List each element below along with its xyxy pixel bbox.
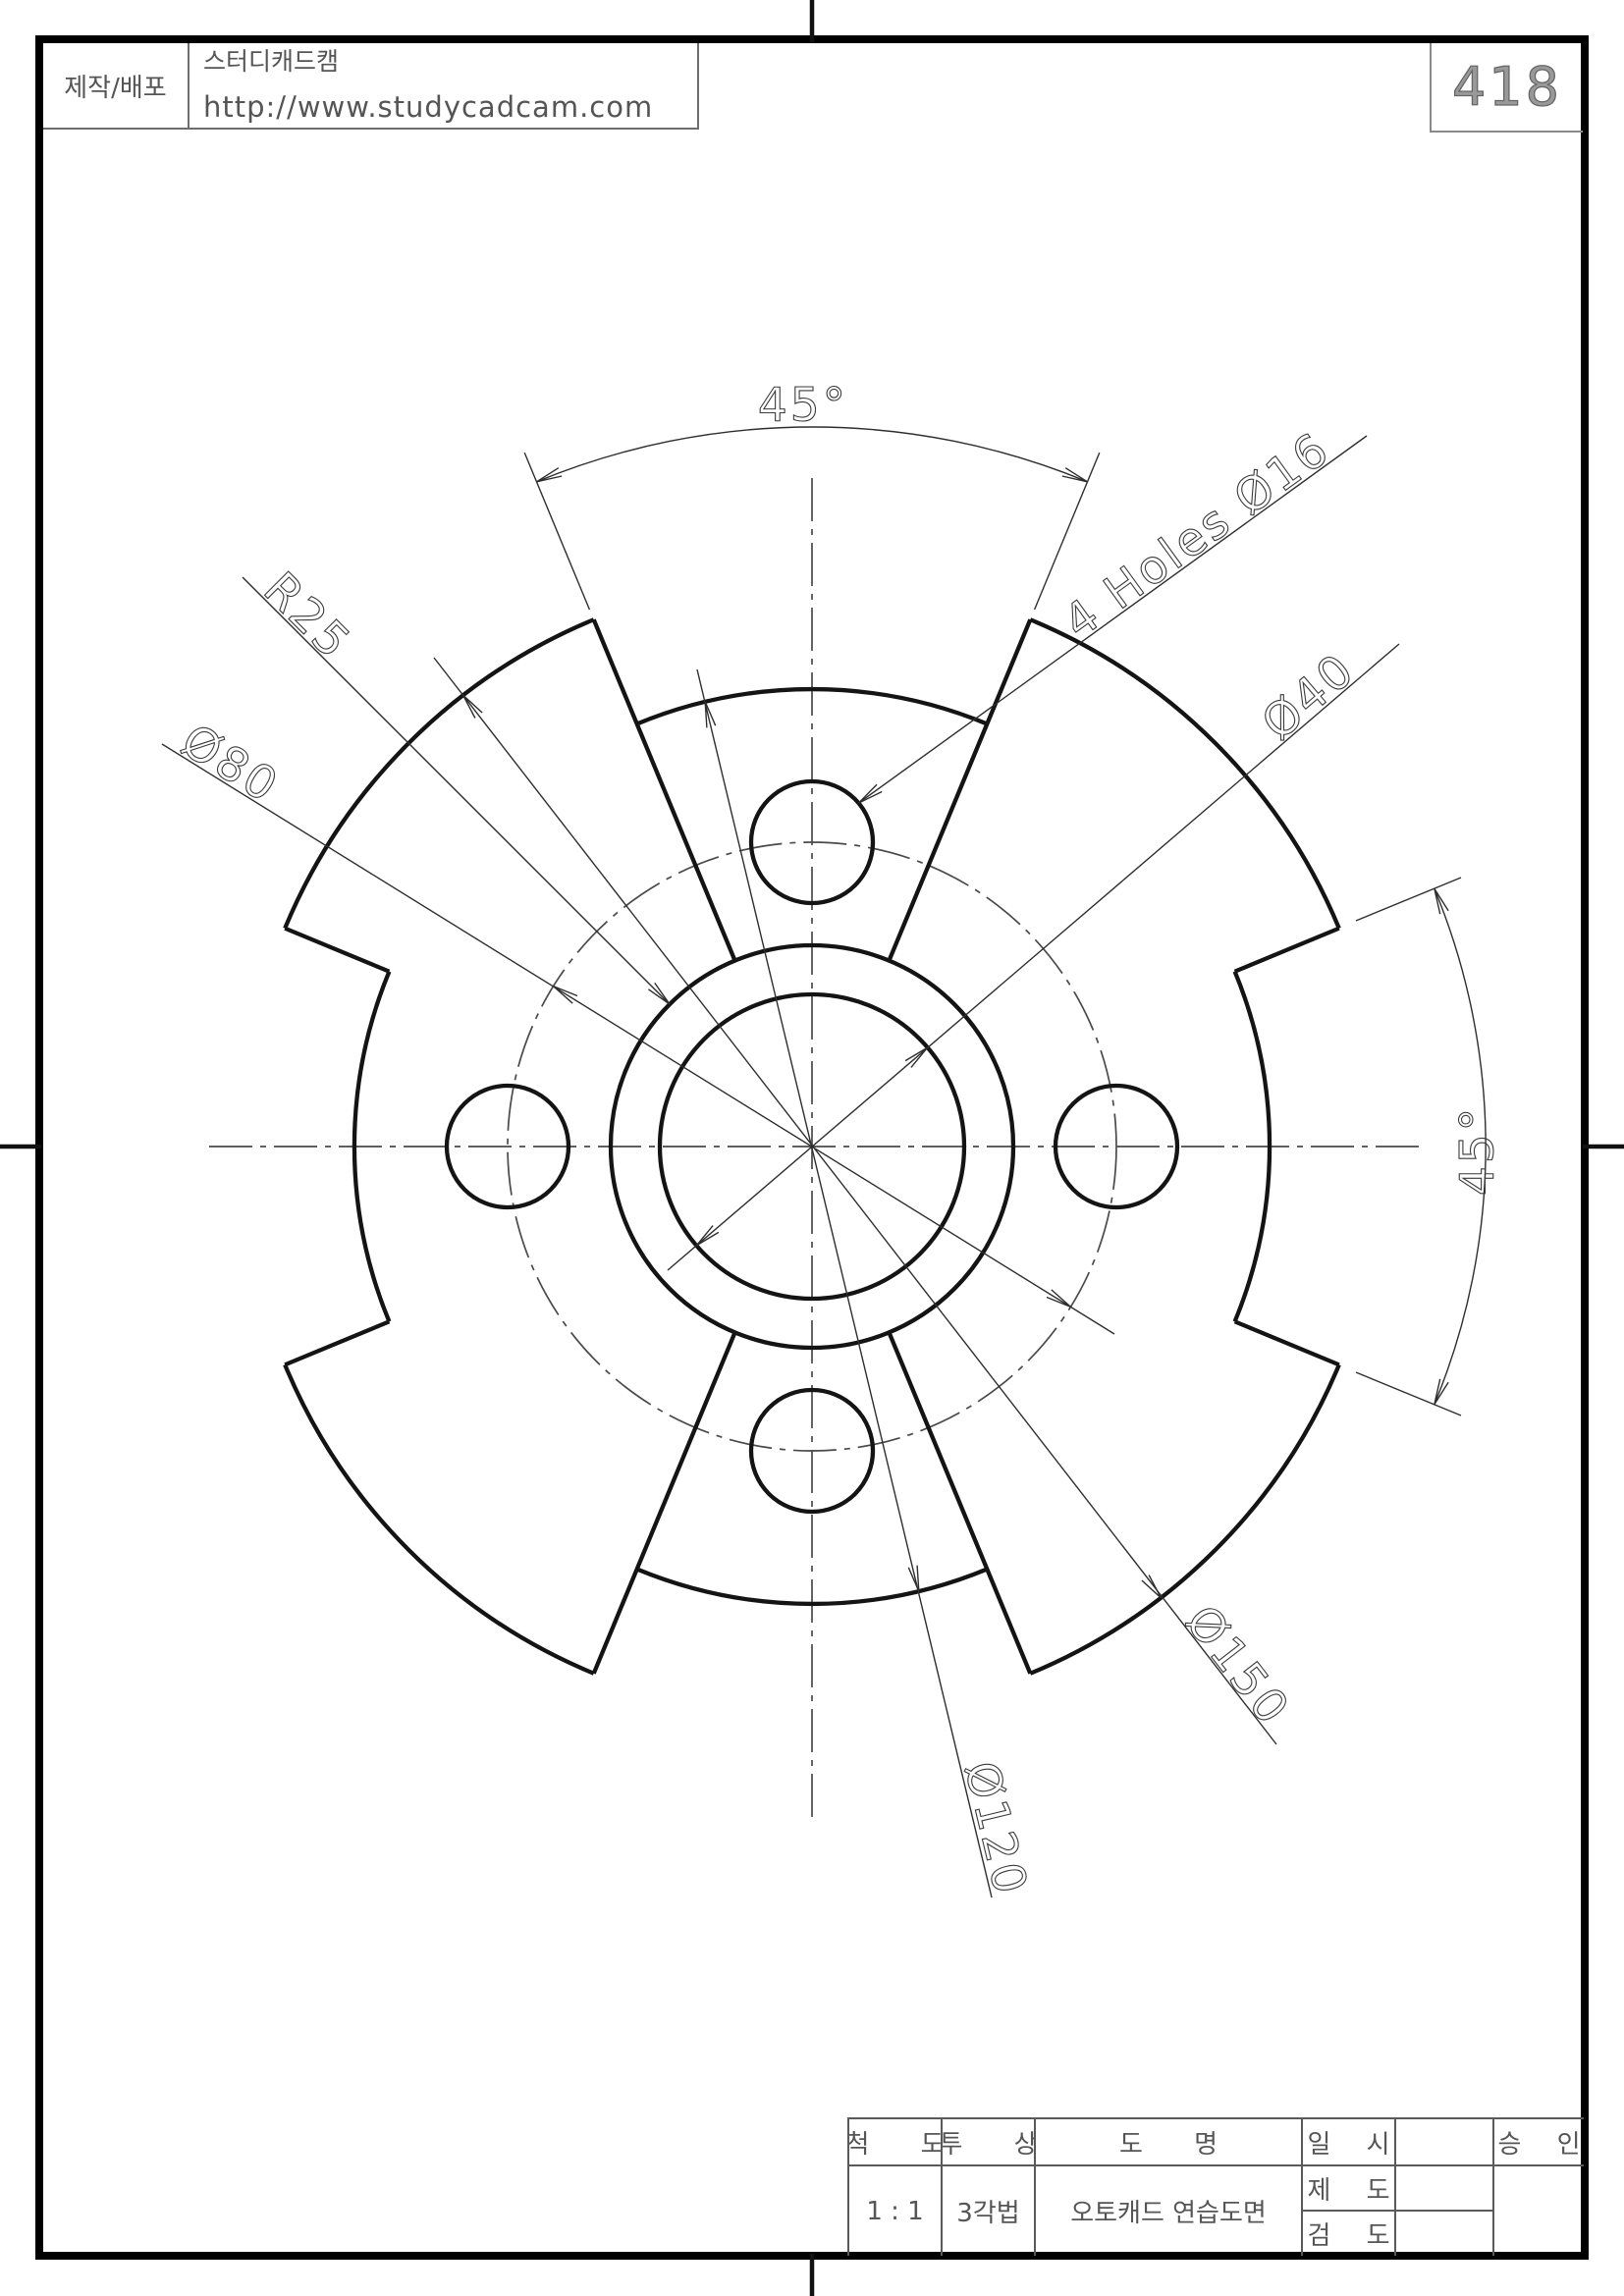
- arrowheads: [463, 468, 1449, 1598]
- centerlines: [209, 478, 1422, 1818]
- left-notch-edge-bottom: [285, 1321, 389, 1364]
- draft-label-cell: 제 도: [1301, 2164, 1394, 2210]
- date-value-cell: [1394, 2119, 1492, 2164]
- date-header: 일 시: [1301, 2119, 1394, 2164]
- dim-top-angle: 45°: [758, 379, 848, 433]
- drawing-name-value: 오토캐드 연습도면: [1034, 2164, 1301, 2256]
- scale-header-label: 척 도: [849, 2124, 941, 2161]
- outer-arc-ne: [1030, 619, 1339, 929]
- projection-header-label: 투 상: [941, 2124, 1034, 2161]
- approval-header: 승 인: [1492, 2119, 1584, 2164]
- drawing-name-header: 도 명: [1034, 2119, 1301, 2164]
- outer-arc-sw: [285, 1364, 594, 1674]
- dim-center-hole: Ø40: [1252, 642, 1366, 751]
- dim-side-angle: 45°: [1451, 1105, 1505, 1196]
- title-block: 척 도 투 상 도 명 일 시 승 인 1 : 1 3각법 오토캐드 연습도면 …: [847, 2117, 1584, 2256]
- check-label: 검 도: [1307, 2216, 1394, 2252]
- right-notch-edge-bottom: [1235, 1321, 1339, 1364]
- dim-hub-radius: R25: [253, 562, 362, 671]
- bottom-slot-left-edge: [594, 1332, 735, 1673]
- bottom-slot-right-edge: [890, 1332, 1031, 1673]
- scale-header: 척 도: [849, 2119, 941, 2164]
- dim-slot-step-dia: Ø120: [953, 1756, 1038, 1901]
- check-label-cell: 검 도: [1301, 2210, 1394, 2256]
- right-notch-edge-top: [1235, 929, 1339, 972]
- dim-outer-dia: Ø150: [1174, 1595, 1300, 1735]
- dim-bolt-circle: Ø80: [172, 714, 289, 815]
- draft-value-cell: [1394, 2164, 1492, 2210]
- dimension-labels: 45° 45° R25 Ø80 Ø40 4 Holes Ø16 Ø150 Ø12…: [172, 379, 1504, 1902]
- check-value-cell: [1394, 2210, 1492, 2256]
- projection-header: 투 상: [941, 2119, 1034, 2164]
- dimension-lines: [162, 427, 1486, 1897]
- drawing-name-header-label: 도 명: [1119, 2124, 1239, 2161]
- date-header-label: 일 시: [1307, 2124, 1394, 2161]
- left-notch-edge-top: [285, 929, 389, 972]
- approval-header-label: 승 인: [1497, 2124, 1584, 2161]
- projection-value: 3각법: [941, 2164, 1034, 2256]
- top-slot-left-edge: [594, 619, 735, 960]
- dim-holes-note: 4 Holes Ø16: [1054, 421, 1340, 649]
- scale-value: 1 : 1: [849, 2164, 941, 2256]
- draft-label: 제 도: [1307, 2170, 1394, 2207]
- top-slot-right-edge: [890, 619, 1031, 960]
- drawing-sheet: 제작/배포 스터디캐드캠 http://www.studycadcam.com …: [0, 0, 1624, 2296]
- cad-drawing: 45° 45° R25 Ø80 Ø40 4 Holes Ø16 Ø150 Ø12…: [0, 0, 1624, 2296]
- approval-value-cell: [1492, 2164, 1584, 2256]
